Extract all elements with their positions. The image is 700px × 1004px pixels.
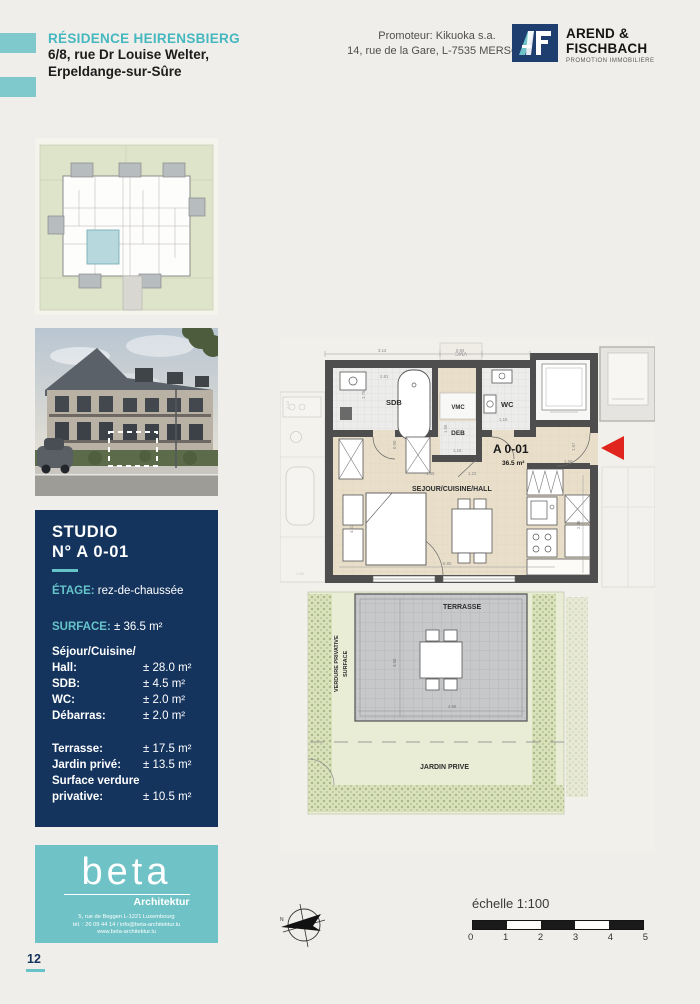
dim-terrace-depth: 3.50 [392,658,397,667]
windows [373,576,515,582]
room-row: Jardin privé: ± 13.5 m² [52,759,201,775]
wc-label: WC [501,400,514,409]
architect-box: beta Architektur 5, rue de Beggen L-1221… [35,845,218,943]
terrace-label: TERRASSE [443,604,481,611]
architect-address: 5, rue de Beggen L-1221 Luxembourg [35,914,218,922]
svg-text:1.55: 1.55 [443,424,448,433]
svg-text:0.94: 0.94 [456,348,465,353]
svg-text:0.90: 0.90 [392,440,397,449]
neighbor-planting [566,597,588,797]
room-label: SDB: [52,678,80,690]
room-value: ± 13.5 m² [143,759,192,771]
scale-ticks: 0 1 2 3 4 5 [468,932,648,943]
etage-value: rez-de-chaussée [98,585,184,597]
room-value: ± 2.0 m² [143,694,185,706]
svg-text:1.39: 1.39 [426,471,435,476]
scale-bar [472,920,644,930]
room-row: Terrasse: ± 17.5 m² [52,743,201,759]
architect-website: www.beta-architektur.lu [35,929,218,937]
logo-name-line1: AREND & [566,26,655,41]
neighbor-dim: 1.54 [296,571,305,576]
residence-title: RÉSIDENCE HEIRENSBIERG [48,31,240,46]
room-row: Séjour/Cuisine/ [52,646,201,662]
room-label: Débarras: [52,710,106,722]
logo-name-line2: FISCHBACH [566,41,655,56]
surface-label: SURFACE: [52,621,111,633]
etage-row: ÉTAGE: rez-de-chaussée [52,585,201,597]
floor-plan: 2.14 1.54 TERRASSE 3. [280,337,655,852]
neighbor-dim: 2.14 [285,400,290,409]
compass-icon: N [279,902,327,950]
room-row: Surface verdure [52,775,201,791]
page-number-underline [26,969,45,972]
room-label: Hall: [52,662,77,674]
site-plan-image [35,138,218,315]
svg-text:6.80: 6.80 [443,561,452,566]
building-photo [35,328,218,496]
scale-tick: 3 [573,932,578,943]
jardin-label: JARDIN PRIVE [420,764,469,771]
scale-tick: 4 [608,932,613,943]
hedge-left [308,594,332,785]
header-accent-block-top [0,33,36,53]
arend-fischbach-text: AREND & FISCHBACH PROMOTION IMMOBILIERE [566,26,655,64]
sdb-label: SDB [386,398,402,407]
logo-tagline: PROMOTION IMMOBILIERE [566,58,655,64]
svg-text:1.16: 1.16 [453,448,462,453]
architect-logo-text: beta [35,850,218,894]
neighbor-rooms-right [602,467,655,587]
site-plan-driveway [123,276,142,310]
svg-text:3.12: 3.12 [378,348,387,353]
hedge-bottom [308,785,564,812]
room-row: privative: ± 10.5 m² [52,791,201,807]
svg-text:4.22: 4.22 [349,524,354,533]
header: RÉSIDENCE HEIRENSBIERG 6/8, rue Dr Louis… [48,31,240,80]
svg-text:N: N [280,917,284,923]
room-value: ± 2.0 m² [143,710,185,722]
verdure-label-line1: SURFACE [343,650,349,677]
architect-logo-sub: Architektur [64,896,190,908]
svg-text:1.68: 1.68 [564,459,573,464]
room-row: Hall: ± 28.0 m² [52,662,201,678]
architect-contact: 5, rue de Beggen L-1221 Luxembourg tél. … [35,914,218,937]
scale-tick: 2 [538,932,543,943]
sejour-label: SEJOUR/CUISINE/HALL [412,486,492,493]
room-value: ± 17.5 m² [143,743,192,755]
scale-tick: 5 [643,932,648,943]
promoter-line2: 14, rue de la Gare, L-7535 MERSCH [346,44,528,59]
bed [343,493,426,565]
room-row: WC: ± 2.0 m² [52,694,201,710]
svg-text:1.67: 1.67 [571,442,576,451]
svg-text:1.18: 1.18 [499,417,508,422]
svg-text:2.81: 2.81 [380,374,389,379]
entrance-opening [590,433,598,465]
vmc-label: VMC [451,405,465,411]
room-value: ± 10.5 m² [143,791,192,803]
room-value: ± 28.0 m² [143,662,192,674]
unit-number-title: N° A 0-01 [52,542,201,562]
room-row: Débarras: ± 2.0 m² [52,710,201,726]
surface-value: ± 36.5 m² [114,621,163,633]
title-underline [52,569,78,572]
room-label: Terrasse: [52,743,103,755]
promoter-block: Promoteur: Kikuoka s.a. 14, rue de la Ga… [346,29,528,59]
room-label: Surface verdure [52,775,140,787]
scale-tick: 1 [503,932,508,943]
highlighted-unit-marker [87,230,119,264]
deb-label: DEB [451,430,465,437]
room-label: WC: [52,694,75,706]
architect-phone-email: tél. : 26 09 44 14 / info@beta-architekt… [35,922,218,930]
header-accent-block-bottom [0,77,36,97]
outdoor-list: Terrasse: ± 17.5 m² Jardin privé: ± 13.5… [52,743,201,807]
brochure-page: RÉSIDENCE HEIRENSBIERG 6/8, rue Dr Louis… [0,0,700,1004]
unit-id-label: A 0-01 [493,442,529,456]
scale-label: échelle 1:100 [472,896,648,911]
residence-address-line1: 6/8, rue Dr Louise Welter, [48,46,240,63]
unit-area-label: 36.5 m² [502,460,525,467]
unit-type-title: STUDIO [52,522,201,542]
scale-block: échelle 1:100 0 1 2 3 4 5 [472,896,648,943]
residence-address-line2: Erpeldange-sur-Sûre [48,63,240,80]
page-number: 12 [27,952,41,966]
svg-text:1.22: 1.22 [468,471,477,476]
room-label: privative: [52,791,103,803]
neighbor-unit-left: 2.14 1.54 [280,392,325,582]
hedge-right [532,594,556,785]
dim-terrace-width: 4.96 [448,704,457,709]
svg-text:1.75: 1.75 [361,390,366,399]
arend-fischbach-logo-icon [512,24,558,62]
room-list: Séjour/Cuisine/ Hall: ± 28.0 m² SDB: ± 4… [52,646,201,726]
room-row: SDB: ± 4.5 m² [52,678,201,694]
svg-text:2.48: 2.48 [576,520,581,529]
etage-label: ÉTAGE: [52,585,95,597]
room-label: Jardin privé: [52,759,121,771]
scale-tick: 0 [468,932,473,943]
neighbor-unit-right [600,347,655,421]
surface-row: SURFACE: ± 36.5 m² [52,621,201,633]
architect-logo-rule [64,894,190,895]
verdure-label-line2: VERDURE PRIVATIVE [334,635,340,692]
room-label: Séjour/Cuisine/ [52,646,136,658]
room-value: ± 4.5 m² [143,678,185,690]
promoter-line1: Promoteur: Kikuoka s.a. [346,29,528,44]
windows-upper [55,396,203,412]
elevator [542,364,586,410]
unit-info-box: STUDIO N° A 0-01 ÉTAGE: rez-de-chaussée … [35,510,218,827]
